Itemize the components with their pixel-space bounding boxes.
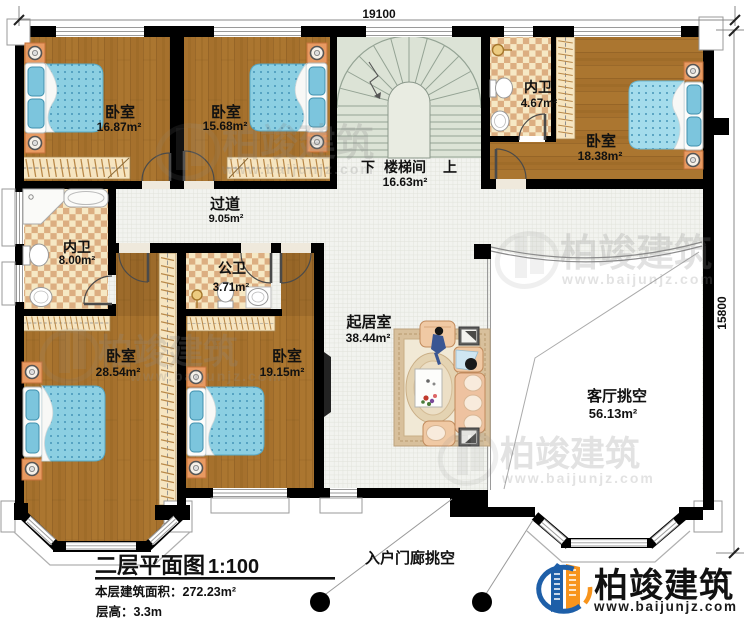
svg-text:56.13m²: 56.13m² xyxy=(589,406,638,421)
svg-text:内卫: 内卫 xyxy=(524,79,552,95)
svg-text:8.00m²: 8.00m² xyxy=(59,255,96,267)
svg-text:15.68m²: 15.68m² xyxy=(203,119,248,133)
svg-text:15800: 15800 xyxy=(715,296,729,330)
svg-text:起居室: 起居室 xyxy=(345,313,391,331)
svg-text:客厅挑空: 客厅挑空 xyxy=(586,387,647,405)
svg-text:3.71m²: 3.71m² xyxy=(213,282,250,294)
svg-text:www.baijunjz.com: www.baijunjz.com xyxy=(501,470,655,486)
svg-text:19100: 19100 xyxy=(362,7,396,21)
svg-text:本层建筑面积：272.23m²: 本层建筑面积：272.23m² xyxy=(95,584,236,599)
svg-text:卧室: 卧室 xyxy=(106,347,136,365)
svg-text:卧室: 卧室 xyxy=(105,103,135,121)
svg-text:公卫: 公卫 xyxy=(218,260,246,276)
svg-text:上: 上 xyxy=(443,159,457,175)
svg-text:楼梯间: 楼梯间 xyxy=(384,159,426,175)
svg-text:入户门廊挑空: 入户门廊挑空 xyxy=(365,549,455,567)
svg-text:卧室: 卧室 xyxy=(272,347,302,365)
svg-text:4.67m²: 4.67m² xyxy=(521,98,558,110)
svg-text:卧室: 卧室 xyxy=(586,132,616,150)
svg-text:内卫: 内卫 xyxy=(63,239,91,255)
svg-text:1:100: 1:100 xyxy=(208,556,259,578)
svg-text:16.63m²: 16.63m² xyxy=(383,175,428,189)
svg-text:柏竣建筑: 柏竣建筑 xyxy=(560,233,712,275)
svg-text:38.44m²: 38.44m² xyxy=(346,331,391,345)
svg-text:过道: 过道 xyxy=(210,195,240,213)
svg-text:9.05m²: 9.05m² xyxy=(209,213,244,225)
svg-text:19.15m²: 19.15m² xyxy=(260,365,305,379)
svg-text:www.baijunjz.com: www.baijunjz.com xyxy=(561,271,715,287)
svg-text:下: 下 xyxy=(361,159,375,175)
svg-text:18.38m²: 18.38m² xyxy=(578,149,623,163)
svg-text:柏竣建筑: 柏竣建筑 xyxy=(500,434,640,474)
svg-text:二层平面图: 二层平面图 xyxy=(95,553,205,578)
svg-text:www.baijunjz.com: www.baijunjz.com xyxy=(221,161,375,177)
svg-text:层高：3.3m: 层高：3.3m xyxy=(96,604,162,619)
svg-text:16.87m²: 16.87m² xyxy=(97,120,142,134)
svg-text:28.54m²: 28.54m² xyxy=(96,365,141,379)
